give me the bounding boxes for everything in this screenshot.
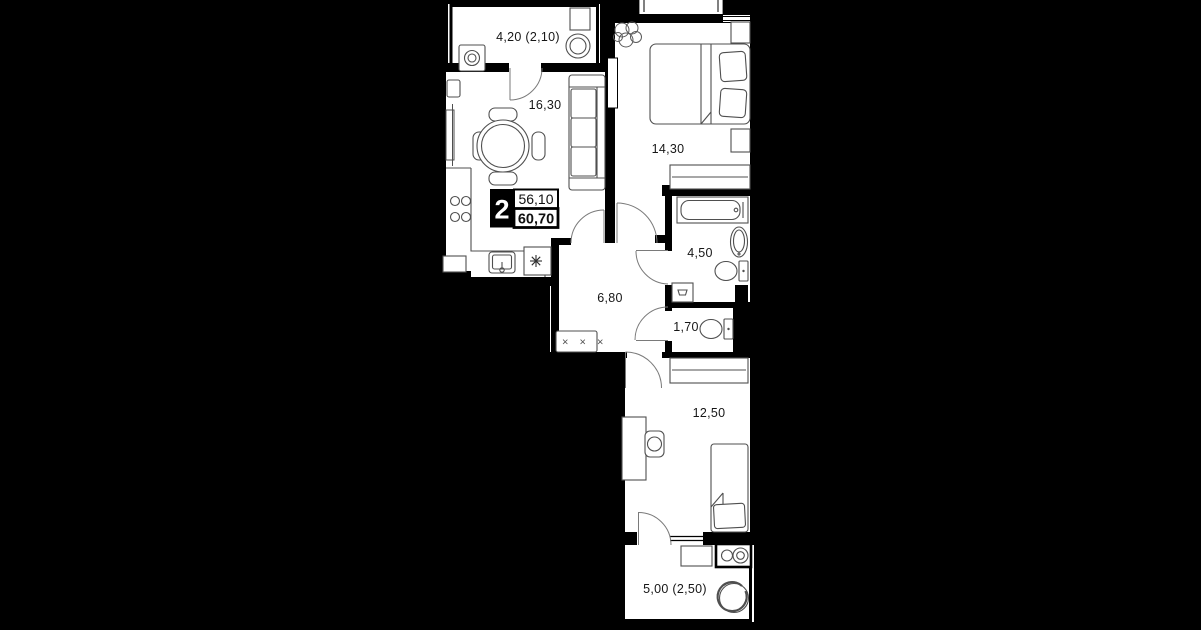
bathtub-icon <box>677 197 748 223</box>
chair-icon <box>489 172 517 185</box>
floorplan-canvas: × × × <box>0 0 1201 630</box>
pillow-icon <box>713 503 745 529</box>
bathroom-sink-icon <box>731 227 748 257</box>
double-bed-icon <box>650 44 750 124</box>
room-label-hallway: 6,80 <box>597 291 623 305</box>
chair-icon <box>489 108 517 121</box>
fridge-icon <box>524 247 551 275</box>
pillow-icon <box>719 88 747 118</box>
room-label-balcony-top: 4,20 (2,10) <box>496 30 560 44</box>
nightstand-icon <box>731 129 750 152</box>
room-label-wc: 1,70 <box>673 320 699 334</box>
toilet-icon <box>715 261 748 281</box>
unit-card: 2 56,10 60,70 <box>490 189 558 228</box>
chair-icon <box>532 132 545 160</box>
bedroom-window <box>723 15 750 22</box>
balcony-stand-icon <box>681 546 712 566</box>
unit-card-area-lower: 60,70 <box>518 212 554 228</box>
closet-marks: × × × <box>562 337 607 349</box>
washing-machine-icon <box>459 45 485 71</box>
wardrobe-icon <box>670 358 748 383</box>
radiator-icon <box>447 80 460 97</box>
fridge-snowflake-icon <box>530 255 542 267</box>
unit-card-rooms-count: 2 <box>494 195 509 225</box>
room-label-bathroom: 4,50 <box>687 246 713 260</box>
nightstand-icon <box>731 22 750 43</box>
desk-chair-icon <box>645 431 664 457</box>
toilet-icon <box>700 319 733 339</box>
desk-icon <box>622 417 646 480</box>
floor-bay-window <box>638 0 724 15</box>
round-table-icon <box>718 582 749 612</box>
floorplan-page: × × × <box>0 0 1201 630</box>
pillow-icon <box>719 51 747 82</box>
room-label-balcony-bottom: 5,00 (2,50) <box>643 582 707 596</box>
kitchen-window <box>446 104 454 166</box>
wall-niche <box>608 58 618 108</box>
corner-cabinet-icon <box>443 256 466 272</box>
wardrobe-icon <box>670 165 750 189</box>
single-bed-icon <box>711 444 748 532</box>
cooktop-icon <box>716 544 751 567</box>
balcony-window-strip <box>670 534 703 543</box>
room-label-bedroom-second: 12,50 <box>693 406 726 420</box>
room-label-kitchen-living: 16,30 <box>529 98 562 112</box>
balcony-cabinet-icon <box>570 8 590 30</box>
unit-card-area-upper: 56,10 <box>518 191 553 207</box>
room-label-bedroom: 14,30 <box>652 142 685 156</box>
kitchen-sink-icon <box>489 252 515 273</box>
shelf-icon <box>672 283 693 302</box>
sofa-icon <box>569 75 605 190</box>
